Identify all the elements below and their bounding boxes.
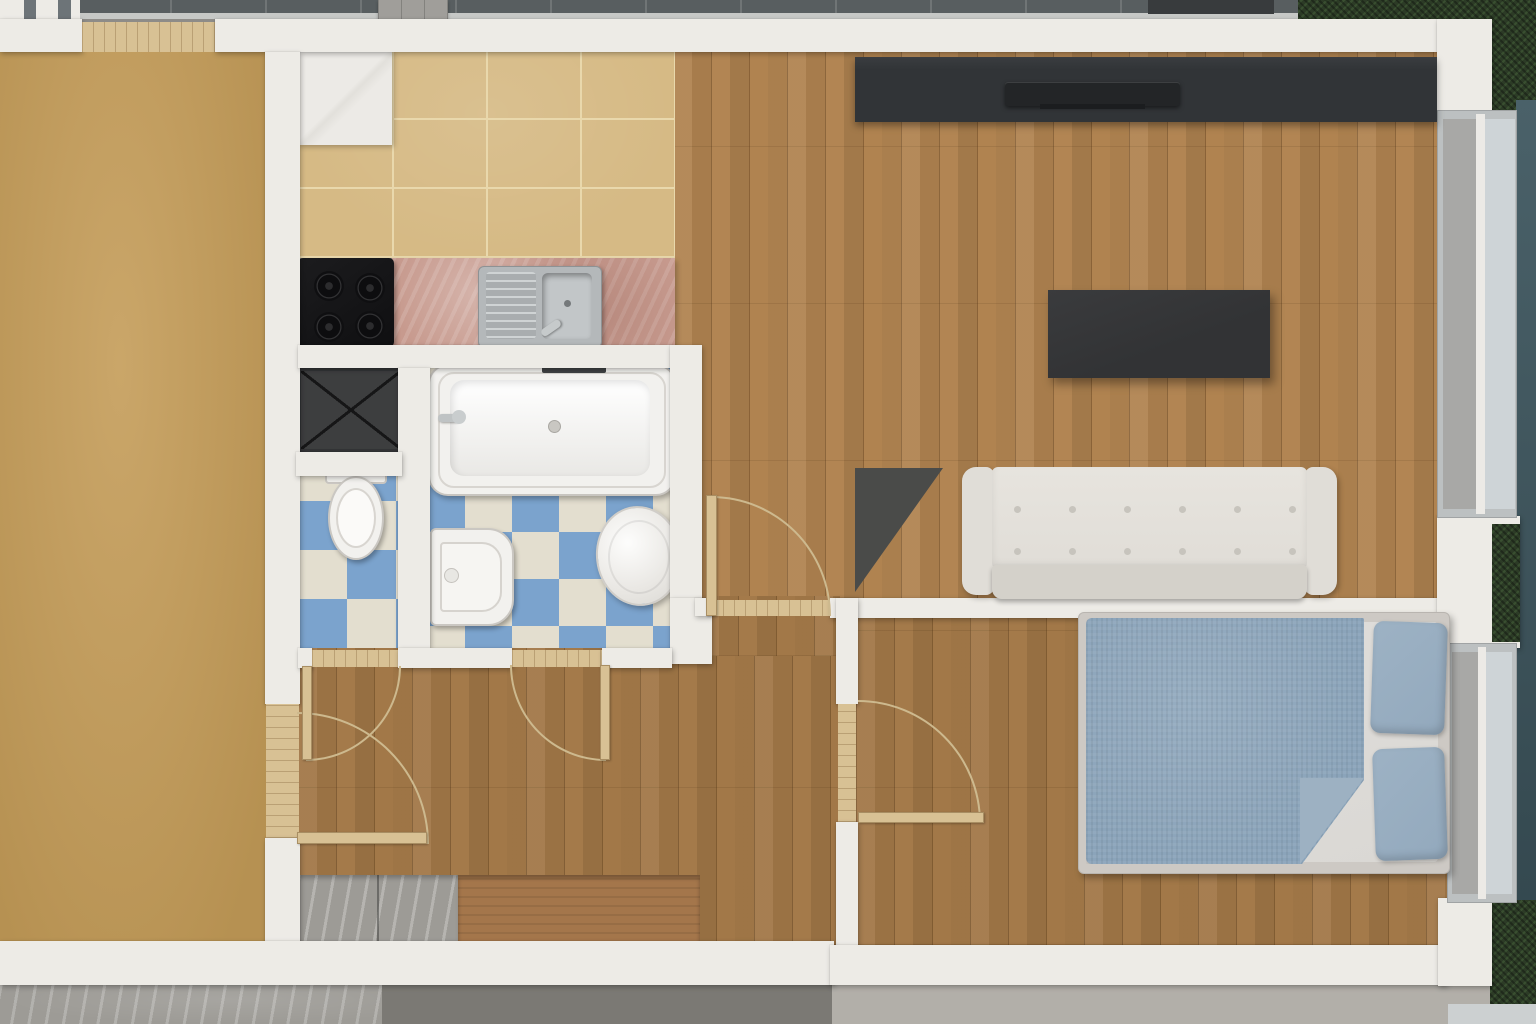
sofa-tufting-buttons [1014,506,1021,513]
entry-doormat-tiles [298,875,460,943]
washing-machine-lid [608,520,670,594]
living-room-window-sash-outer [1485,119,1515,509]
bedroom-window-sash-outer [1486,652,1512,894]
wc-door-threshold [312,650,398,667]
washbasin-faucet [444,568,459,583]
hedge-east-mid [1492,524,1520,642]
kitchen-corner-cabinet [298,50,392,145]
sofa-seat [992,565,1307,599]
living-room-door-leaf [706,495,717,616]
coffee-table [1048,290,1270,378]
terrace-tiles [75,0,1298,14]
wall-wc-band [296,452,402,476]
wall-bathroom-south-2 [398,648,512,668]
sink-drainboard [486,272,536,339]
wall-north-east-corner [1437,19,1492,113]
tv-panel [1005,82,1180,106]
burner-icon [314,271,344,301]
terrace-doormat [1148,0,1274,14]
bed-pillow [1372,747,1448,861]
bathroom-door-leaf [600,665,610,760]
sofa-armrest-right [1305,467,1337,595]
bedroom-door-threshold [838,704,856,822]
wall-side-room-divider-upper [265,52,300,704]
burner-icon [355,311,385,341]
toilet-seat [336,488,376,548]
bedroom-door-leaf [858,812,984,823]
side-room-door-threshold [266,704,299,838]
burner-icon [355,273,385,303]
bedroom-window-mullion [1478,647,1486,899]
floor-plan: Top-down 3D rendered floor plan of a one… [0,0,1536,1024]
living-room-window-sash-inner [1443,119,1476,509]
wall-kitchen-bathroom [298,345,672,368]
wall-bedroom-west-lower [836,822,858,946]
sofa-armrest-left [962,467,994,595]
wall-bedroom-west-upper [836,598,858,704]
side-room-floor [0,52,266,942]
bedroom-window-sash-inner [1452,652,1478,894]
sofa-backrest [992,467,1307,569]
walkway-south-east [832,985,1492,1024]
bathtub-faucet-head [452,410,466,424]
walkway-south-west [0,983,382,1024]
sink-drain [564,300,571,307]
balcony-threshold [82,22,215,52]
wall-top-west [0,19,82,52]
burner-icon [314,312,344,342]
wall-top [215,19,1437,52]
tv-stand-bar [1040,104,1145,109]
side-room-door-leaf [297,832,427,844]
wall-bathroom-south-1 [298,648,312,668]
wall-bathroom-south-3 [602,648,672,668]
bed-pillow [1370,621,1448,736]
shower-tray [298,368,404,452]
wall-wc-bath-divider [398,368,430,648]
wall-side-room-divider-lower [265,838,300,948]
living-room-window-mullion [1476,114,1485,514]
wall-bottom-west [0,941,834,985]
wall-bottom-east [830,945,1447,985]
window-frame-bits-south-east [1448,1004,1536,1024]
walkway-south [382,985,832,1024]
hallway-bench [458,875,700,943]
wc-door-leaf [302,666,312,760]
wall-south-east-corner [1438,898,1492,986]
bathtub-drain [548,420,561,433]
wall-bathroom-east-upper [670,345,702,598]
